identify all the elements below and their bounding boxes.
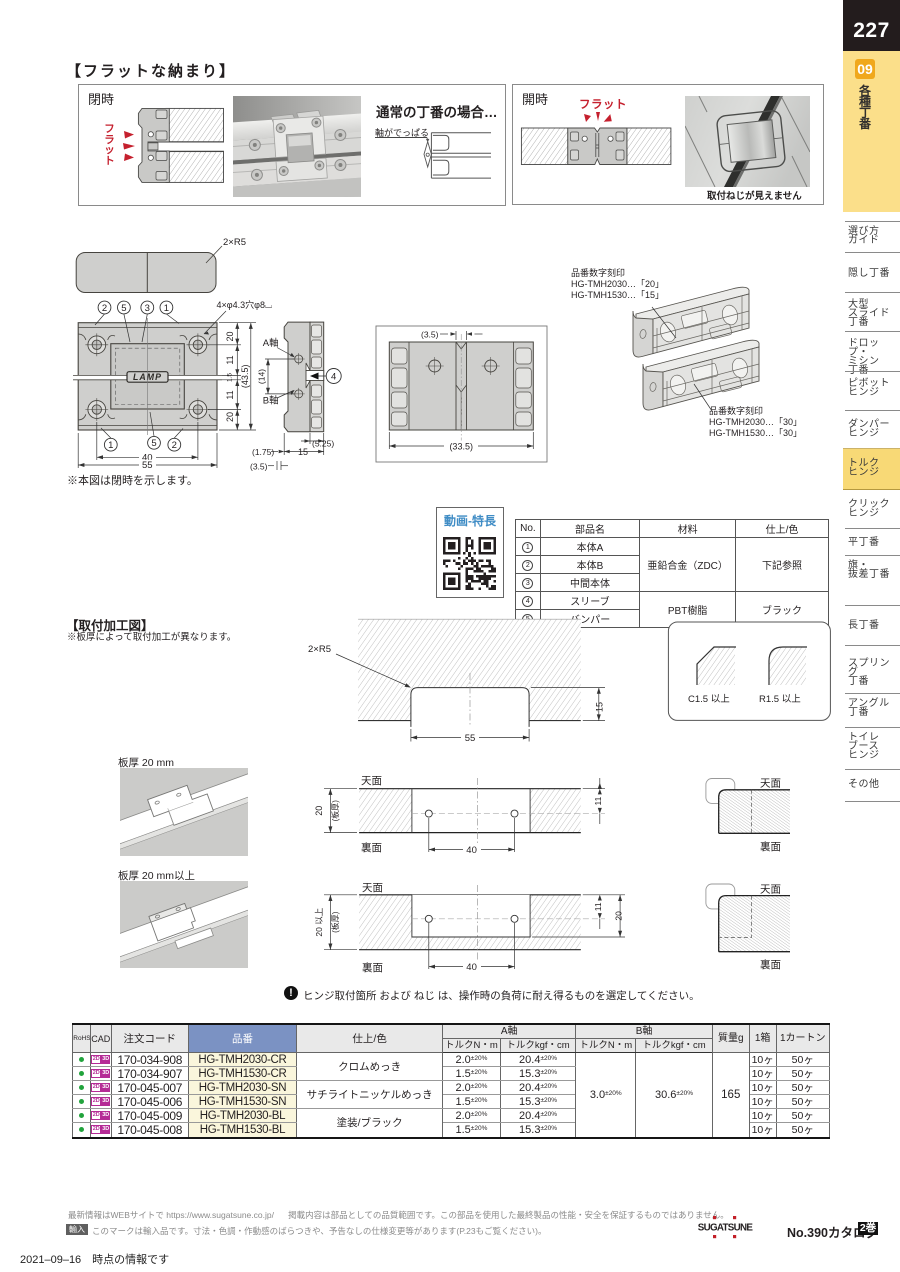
svg-text:天面: 天面 — [361, 775, 382, 787]
svg-text:天面: 天面 — [760, 884, 781, 896]
svg-text:R1.5 以上: R1.5 以上 — [759, 694, 801, 705]
svg-text:(14): (14) — [257, 369, 267, 384]
svg-text:天面: 天面 — [760, 778, 781, 790]
svg-text:5: 5 — [151, 438, 156, 449]
svg-text:2×R5: 2×R5 — [223, 237, 246, 248]
svg-text:天面: 天面 — [362, 883, 383, 894]
svg-text:(3.5): (3.5) — [250, 462, 268, 472]
svg-text:55: 55 — [142, 460, 153, 471]
svg-text:C1.5 以上: C1.5 以上 — [688, 694, 730, 705]
svg-text:15: 15 — [298, 447, 308, 457]
svg-text:裏面: 裏面 — [361, 841, 382, 854]
svg-text:5: 5 — [121, 303, 126, 314]
svg-text:20: 20 — [225, 412, 235, 422]
svg-text:11: 11 — [593, 796, 603, 805]
svg-text:(3.5): (3.5) — [421, 330, 439, 340]
svg-text:3: 3 — [145, 303, 150, 314]
svg-text:(43.5): (43.5) — [240, 365, 250, 389]
svg-text:20: 20 — [613, 911, 623, 921]
svg-text:4: 4 — [331, 372, 336, 383]
svg-text:11: 11 — [225, 390, 235, 399]
svg-text:15: 15 — [594, 702, 604, 712]
svg-text:(5.25): (5.25) — [312, 439, 334, 449]
svg-text:55: 55 — [465, 733, 476, 744]
svg-text:裏面: 裏面 — [760, 840, 781, 853]
svg-text:裏面: 裏面 — [760, 958, 781, 971]
svg-text:40: 40 — [466, 962, 477, 973]
svg-text:1: 1 — [164, 303, 169, 314]
svg-text:A軸: A軸 — [263, 337, 279, 349]
svg-text:(1.75): (1.75) — [252, 447, 274, 457]
svg-text:(板厚): (板厚) — [330, 911, 340, 933]
svg-text:2: 2 — [102, 303, 107, 314]
svg-text:(33.5): (33.5) — [449, 442, 473, 452]
svg-text:20: 20 — [225, 331, 235, 341]
svg-text:裏面: 裏面 — [362, 961, 383, 974]
svg-text:4×φ4.3穴φ8⌴: 4×φ4.3穴φ8⌴ — [217, 299, 273, 310]
svg-text:(板厚): (板厚) — [330, 800, 340, 822]
svg-text:SUGATSUNE: SUGATSUNE — [698, 1223, 753, 1234]
svg-text:2: 2 — [172, 440, 177, 451]
svg-text:20 以上: 20 以上 — [314, 907, 324, 936]
svg-text:B軸: B軸 — [263, 395, 279, 407]
svg-text:20: 20 — [314, 806, 324, 816]
svg-text:11: 11 — [593, 902, 603, 911]
svg-text:1.5: 1.5 — [227, 373, 234, 382]
svg-text:11: 11 — [225, 355, 235, 364]
svg-text:40: 40 — [466, 845, 477, 856]
svg-text:2×R5: 2×R5 — [308, 644, 331, 655]
svg-text:1: 1 — [108, 440, 113, 451]
